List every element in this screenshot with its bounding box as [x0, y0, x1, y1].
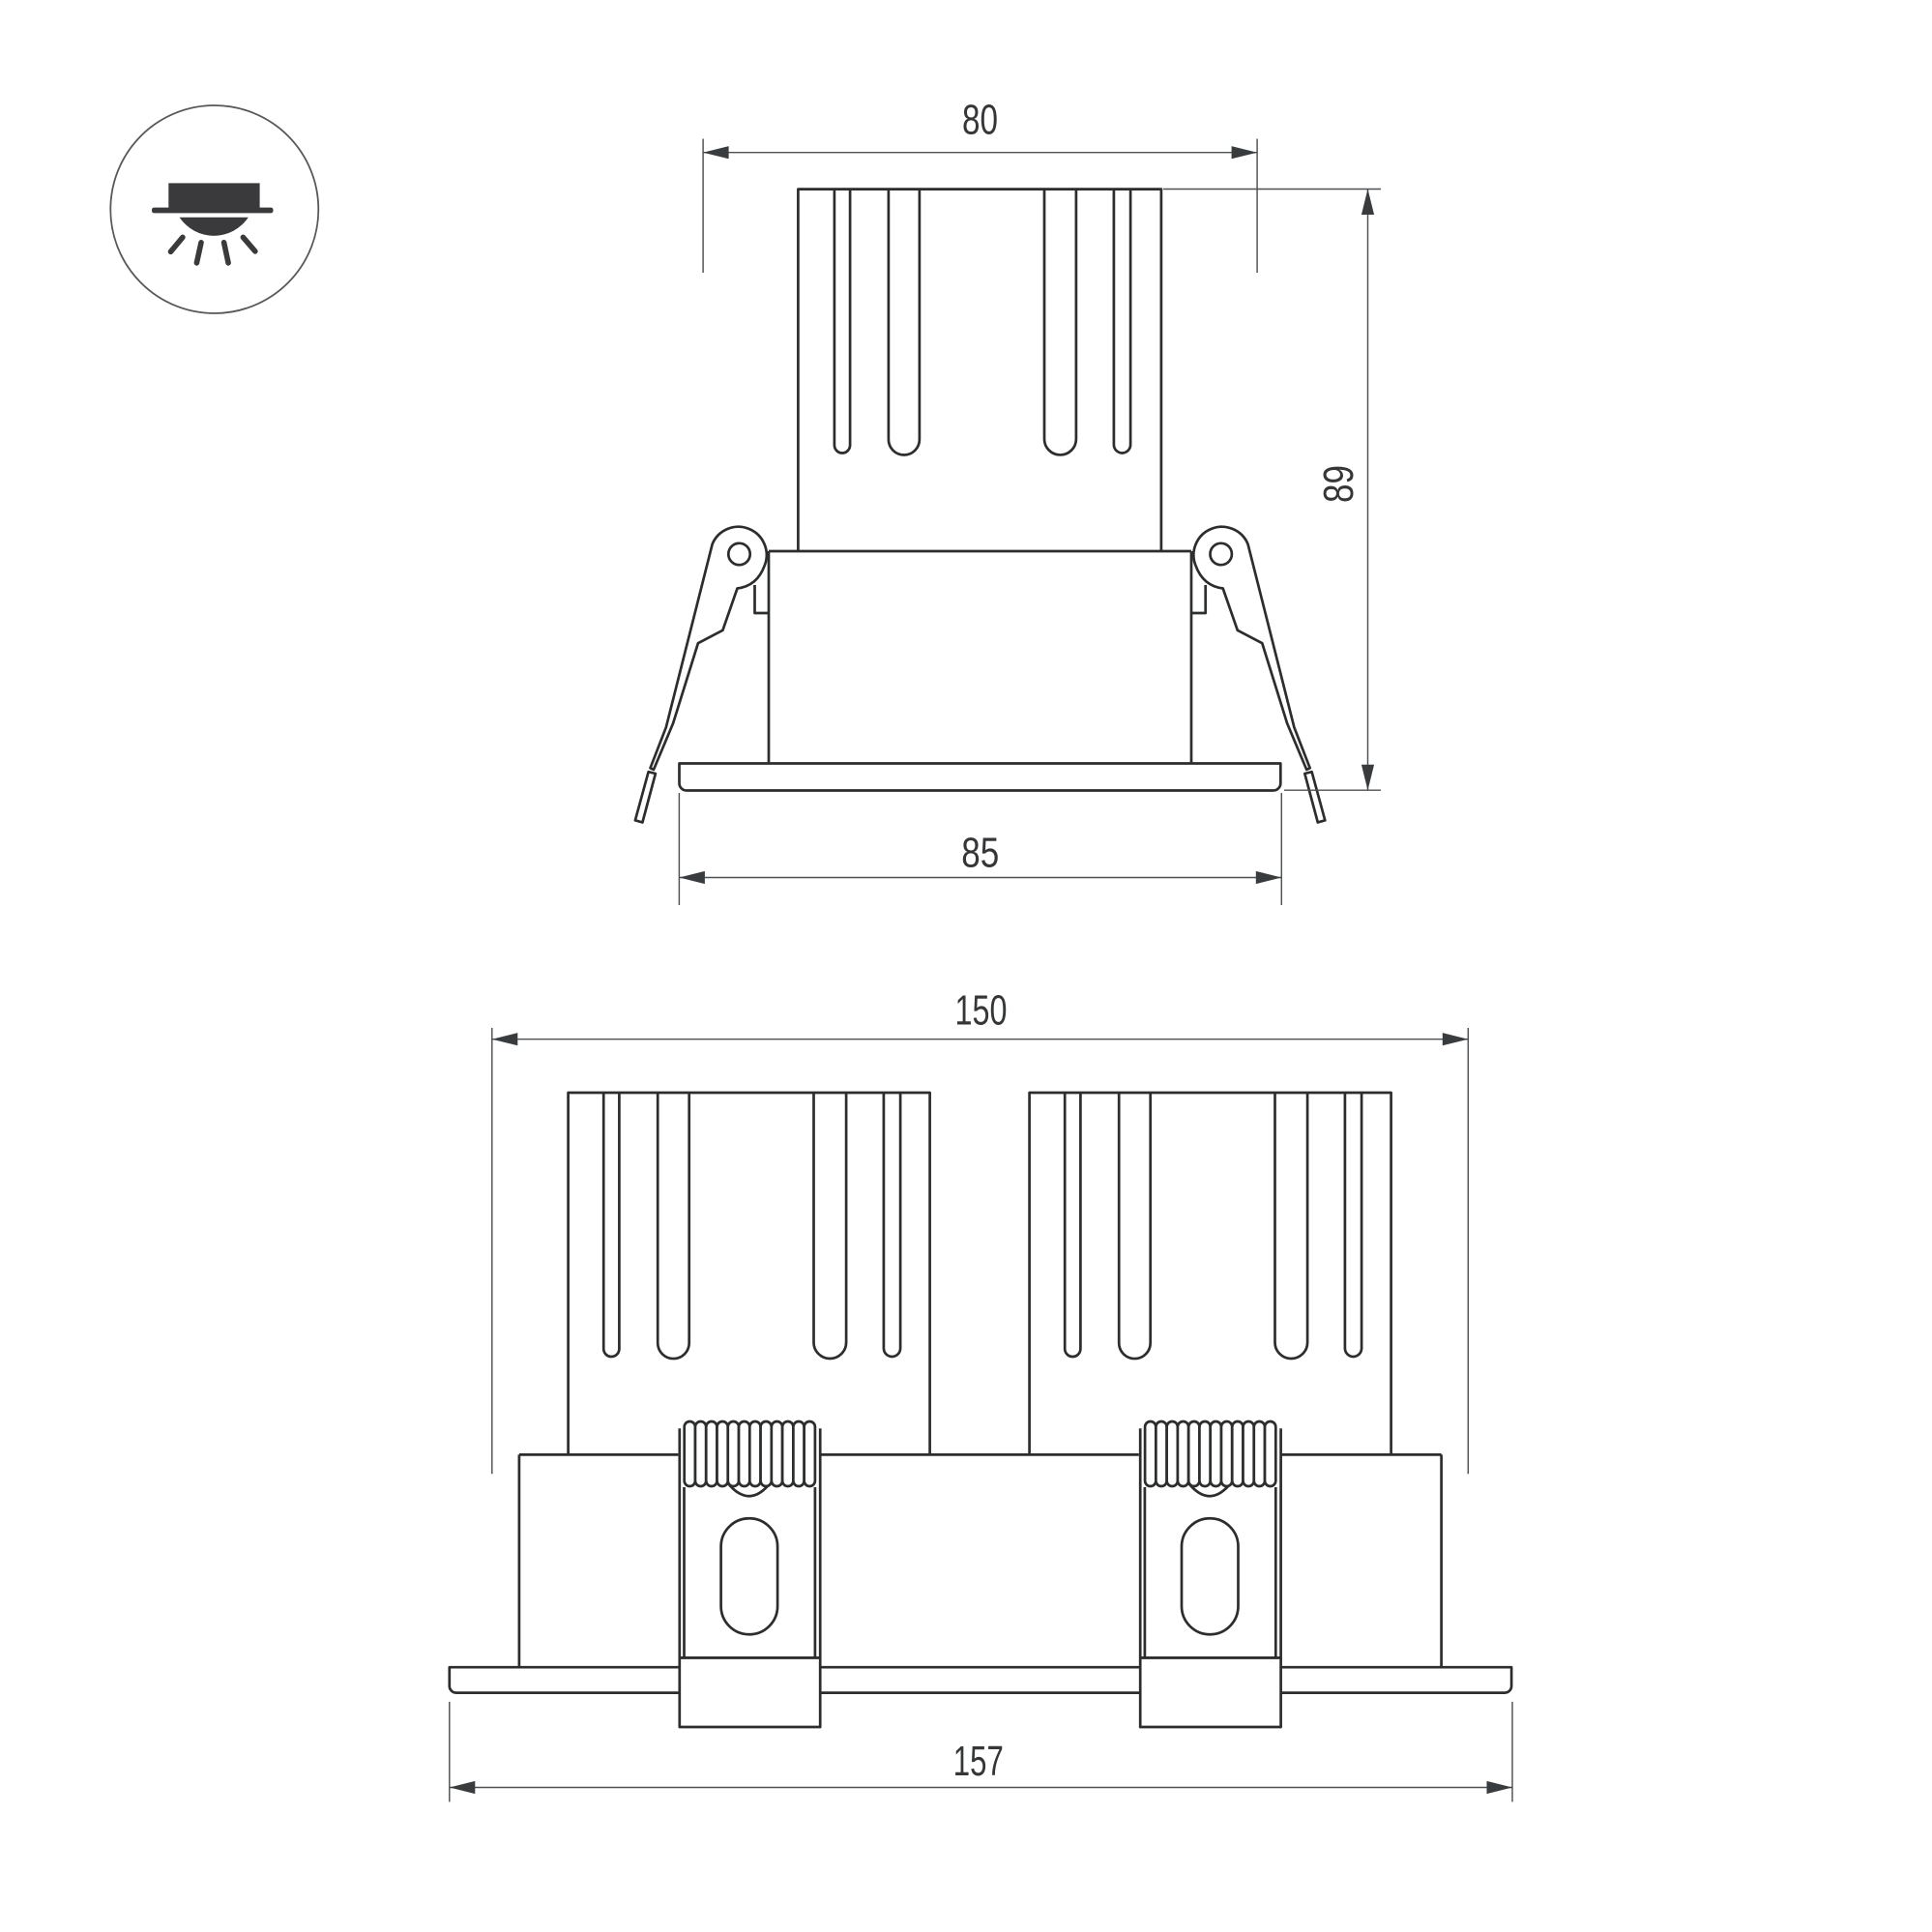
svg-text:85: 85 — [961, 830, 999, 877]
svg-text:80: 80 — [962, 97, 998, 144]
svg-text:157: 157 — [953, 1738, 1004, 1785]
svg-text:89: 89 — [1315, 465, 1362, 503]
svg-text:150: 150 — [955, 987, 1008, 1035]
